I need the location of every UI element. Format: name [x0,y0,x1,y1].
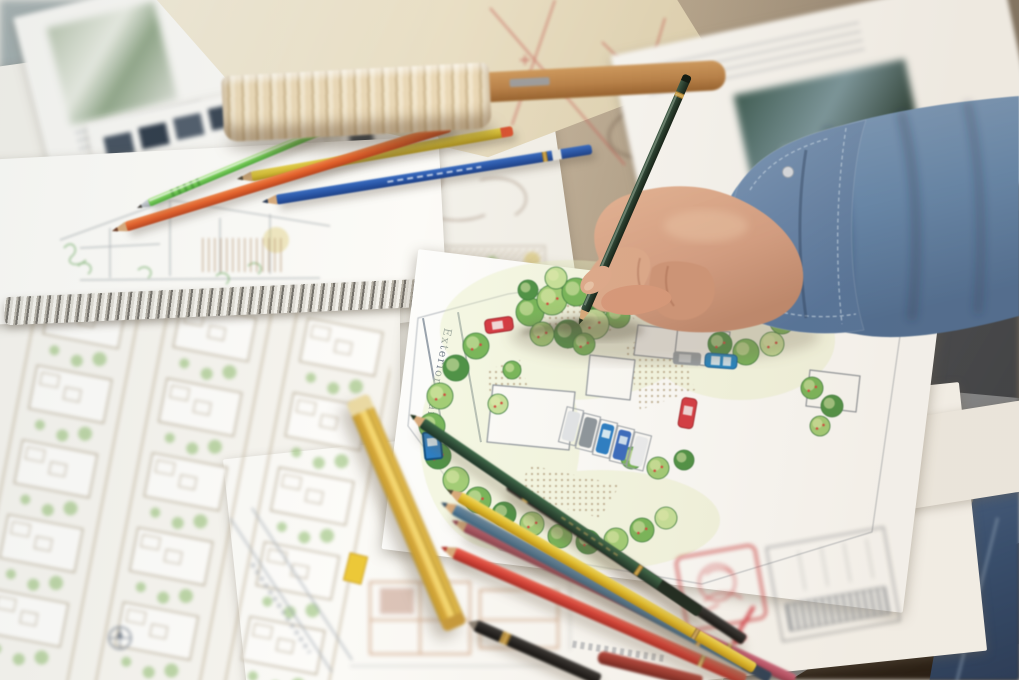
plan-cells [776,537,881,594]
floor-plan-outline [766,527,901,642]
hatched-band [785,586,890,631]
photo-landscape-designer-drawing: Exterior Plan [0,0,1019,680]
